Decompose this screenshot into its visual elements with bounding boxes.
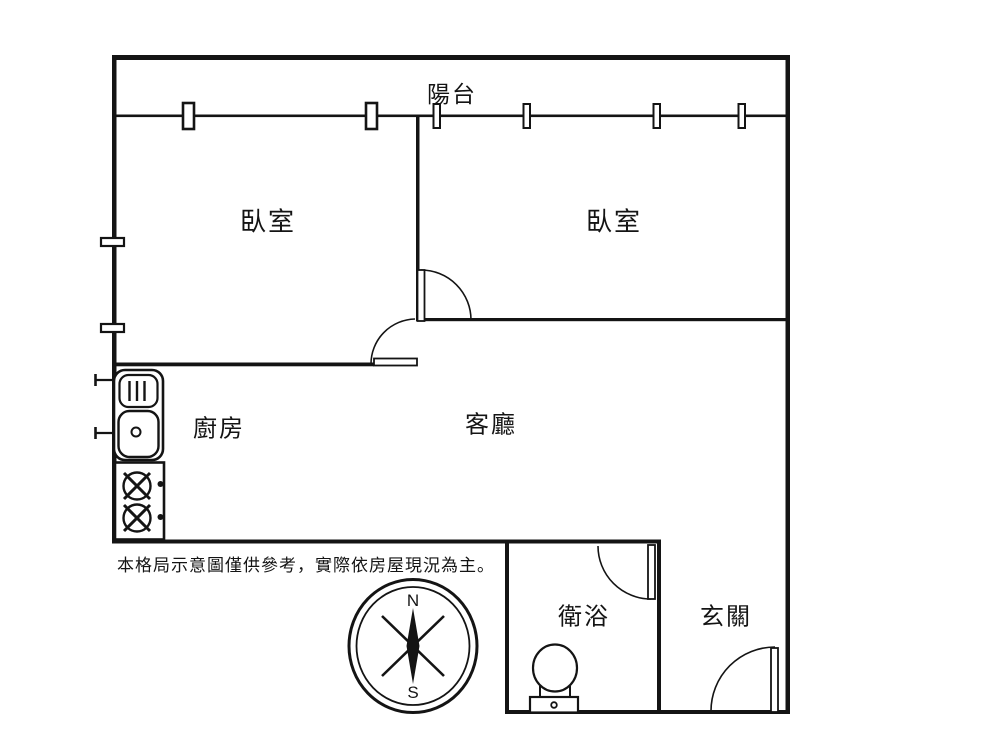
wall-bathroom-right xyxy=(657,543,661,710)
toilet-bowl xyxy=(533,645,577,692)
room-label-kitchen: 廚房 xyxy=(193,409,245,444)
balcony-window-5 xyxy=(654,104,661,128)
floor-plan-page: N S 陽台 臥室 臥室 廚房 客廳 衛浴 玄關 本格局示意圖僅供參考，實際依房… xyxy=(0,0,1000,750)
drainboard-icon xyxy=(120,375,158,407)
room-label-bathroom: 衛浴 xyxy=(558,597,610,632)
room-label-bedroom-left: 臥室 xyxy=(240,202,296,239)
door-leaf-bathroom xyxy=(648,545,655,599)
room-label-living-room: 客廳 xyxy=(465,405,517,440)
room-label-entry: 玄關 xyxy=(700,597,752,632)
door-leaf-bedroom-left xyxy=(374,359,417,366)
door-arc-bedroom-left xyxy=(371,319,415,364)
wall-top xyxy=(112,55,790,60)
toilet-icon xyxy=(530,645,578,713)
wall-bathroom-left xyxy=(505,543,509,710)
compass-south-label: S xyxy=(407,683,418,702)
door-leaf-bedroom-right xyxy=(418,270,425,321)
room-label-bedroom-right: 臥室 xyxy=(586,202,642,239)
stove-knob-2 xyxy=(158,514,164,520)
sink-drain-icon xyxy=(132,428,141,437)
balcony-window-1 xyxy=(183,103,194,129)
balcony-window-4 xyxy=(524,104,531,128)
compass-north-label: N xyxy=(407,591,419,610)
door-arc-bedroom-right xyxy=(421,270,471,320)
wall-bedroom-right-bottom xyxy=(416,318,788,321)
floor-plan-canvas: N S xyxy=(0,0,1000,750)
wall-kitchen-living-bottom xyxy=(112,540,661,544)
balcony-window-6 xyxy=(739,104,746,128)
door-arc-bathroom xyxy=(598,546,651,599)
door-leaf-entry xyxy=(771,648,778,712)
stove-knob-1 xyxy=(158,481,164,487)
kitchen-fixtures xyxy=(95,370,164,540)
left-wall-window-2 xyxy=(101,324,124,332)
room-label-balcony: 陽台 xyxy=(427,75,477,109)
wall-right xyxy=(786,55,791,714)
door-arc-entry xyxy=(711,647,775,711)
left-wall-window-1 xyxy=(101,238,124,246)
balcony-rail xyxy=(116,115,786,118)
wall-bedroom-left-bottom xyxy=(112,363,374,367)
disclaimer-text: 本格局示意圖僅供參考，實際依房屋現況為主。 xyxy=(117,551,495,576)
toilet-button xyxy=(551,702,557,708)
balcony-window-2 xyxy=(366,103,377,129)
compass-icon: N S xyxy=(349,580,477,713)
